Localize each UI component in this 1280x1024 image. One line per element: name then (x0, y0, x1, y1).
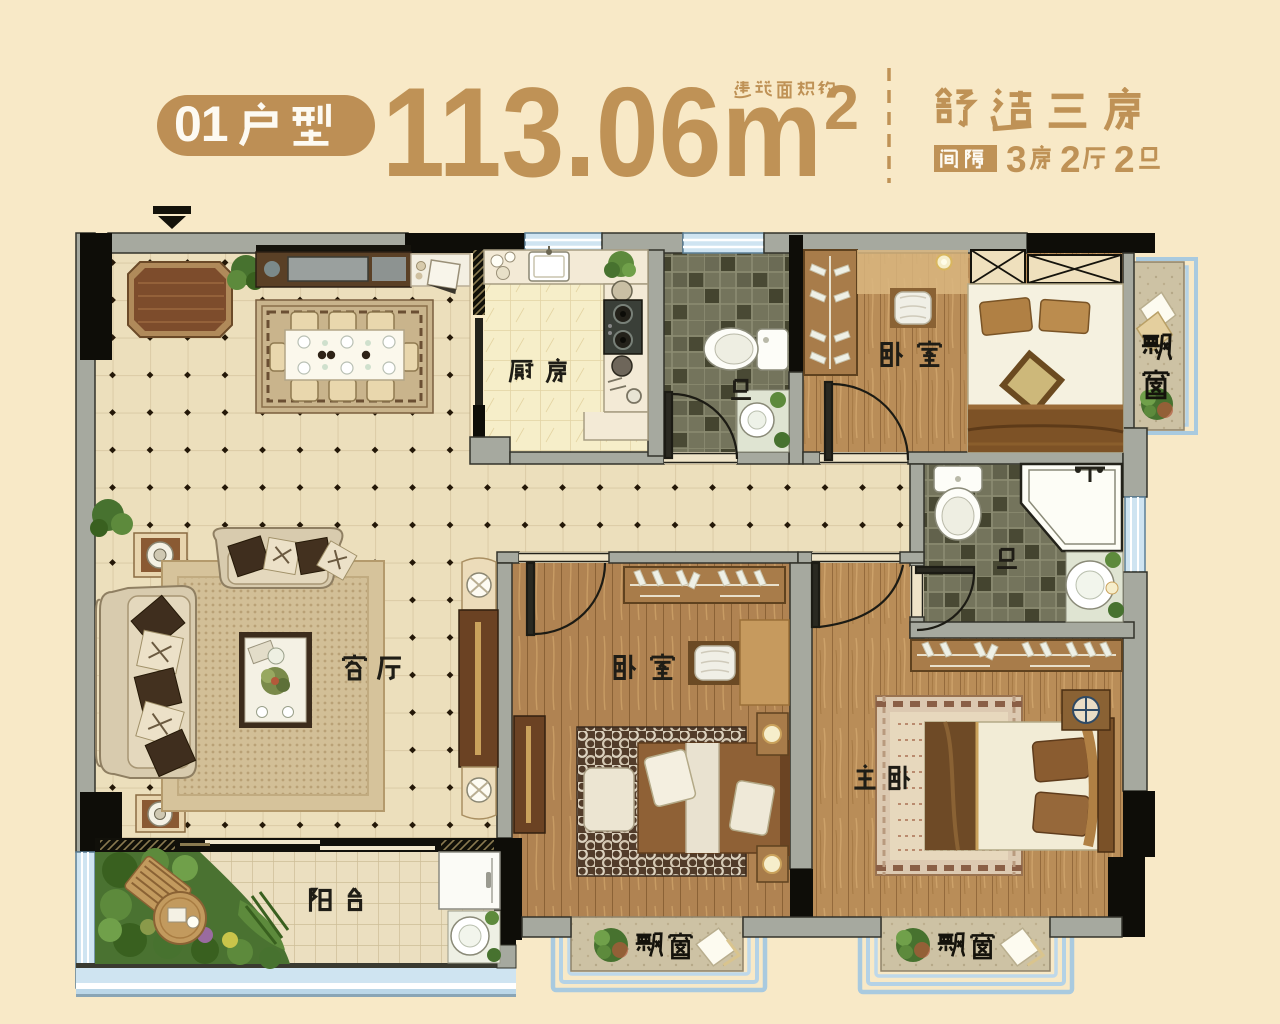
svg-text:2: 2 (1060, 139, 1081, 180)
svg-text:3: 3 (1006, 139, 1027, 180)
svg-text:2: 2 (1114, 139, 1135, 180)
svg-text:01: 01 (174, 96, 228, 152)
svg-text:113.06m: 113.06m (382, 61, 822, 203)
